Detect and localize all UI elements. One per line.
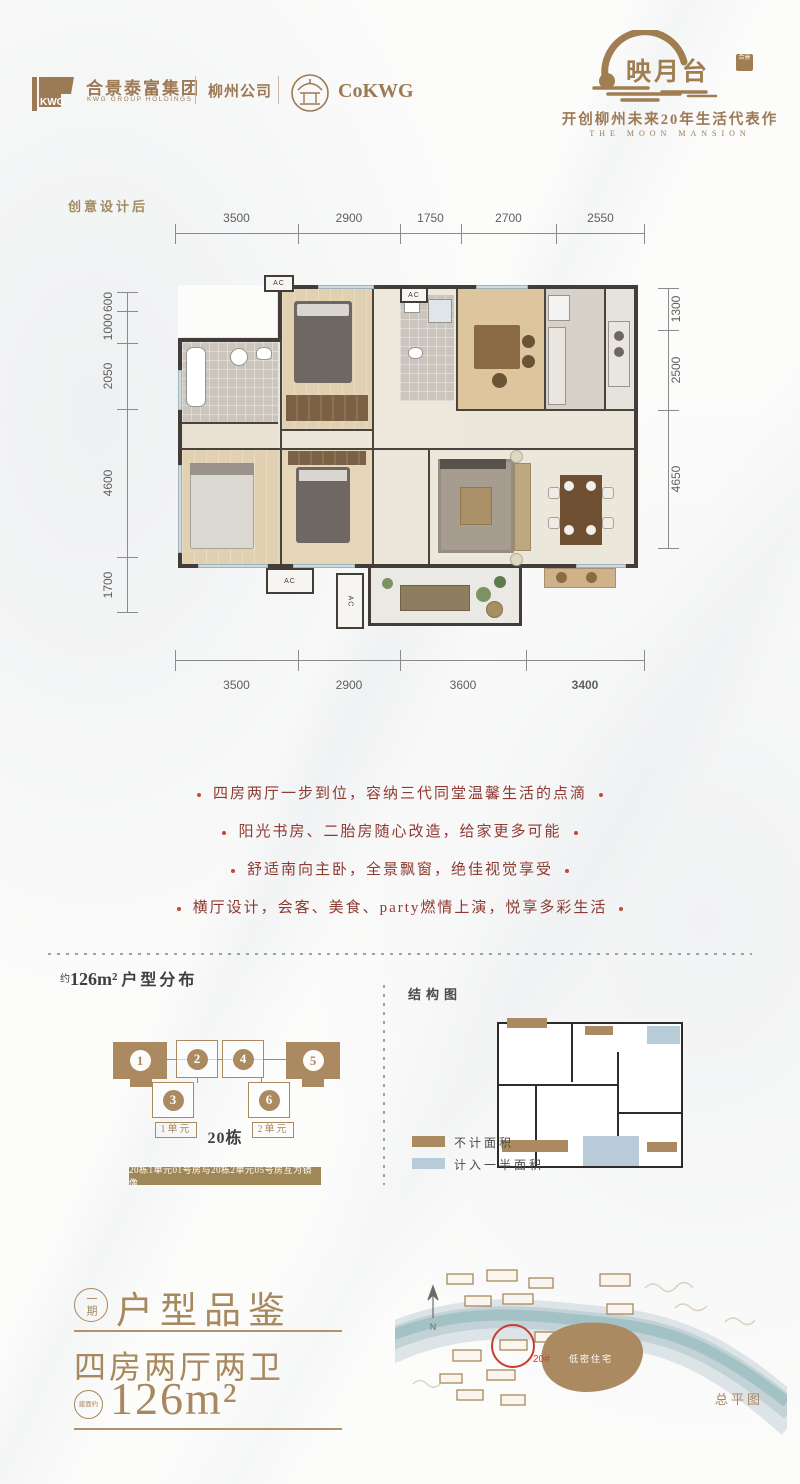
toilet — [256, 347, 272, 360]
unit-block-1-tab — [130, 1079, 152, 1087]
dim-bottom-4: 3400 — [526, 678, 644, 692]
dining-chair — [548, 517, 560, 529]
half-area-patch — [583, 1136, 639, 1166]
tv-cabinet — [440, 459, 506, 469]
desk-chair — [492, 373, 507, 388]
bathtub — [186, 347, 206, 407]
plate — [586, 525, 596, 535]
stool — [586, 572, 597, 583]
dim-left-4: 4600 — [101, 463, 115, 503]
column-divider — [383, 985, 385, 1185]
brochure-page: KWG 合景泰富集团 KWG GROUP HOLDINGS 柳州公司 CoKWG… — [0, 0, 800, 1484]
unit-block-6: 6 — [248, 1082, 290, 1118]
dining-chair — [602, 487, 614, 499]
unit-block-5: 5 — [286, 1042, 340, 1079]
distribution-title: 约126m²户型分布 — [60, 966, 197, 990]
ac-unit: AC — [266, 568, 314, 594]
floor-lamp — [510, 450, 523, 463]
zone-label: 低密住宅 — [569, 1353, 613, 1364]
master-headboard — [190, 463, 254, 475]
stove-burner — [614, 331, 624, 341]
bullet-dot-icon — [197, 793, 201, 797]
dim-line-left — [127, 292, 128, 613]
kitchen-counter — [548, 327, 566, 405]
plate — [564, 481, 574, 491]
hallway — [182, 424, 278, 450]
bathroom-sink — [230, 348, 248, 366]
bullet-dot-icon — [619, 907, 623, 911]
feature-line: 横厅设计，会客、美食、party燃情上演，悦享多彩生活 — [0, 896, 800, 917]
side-chair — [522, 335, 535, 348]
study-desk — [474, 325, 520, 369]
legend-excluded-label: 不计面积 — [454, 1134, 514, 1151]
mirror-note-banner: 20栋1单元01号房与20栋2单元05号房互为镜像 — [129, 1167, 321, 1185]
ac-unit: AC — [264, 275, 294, 292]
bed-pillows — [297, 304, 349, 316]
balcony-bench — [400, 585, 470, 611]
stool — [556, 572, 567, 583]
dim-top-5: 2550 — [556, 211, 645, 225]
bed-pillows — [299, 470, 347, 481]
structure-diagram — [497, 1022, 683, 1168]
unit-block-4: 4 — [222, 1040, 264, 1078]
dim-right-1: 1300 — [669, 289, 683, 329]
fridge — [548, 295, 570, 321]
header-divider — [195, 76, 196, 104]
dim-top-2: 2900 — [298, 211, 400, 225]
dim-left-3: 2050 — [101, 356, 115, 396]
phase-badge: 一期 — [74, 1288, 108, 1322]
dim-bottom-1: 3500 — [175, 678, 298, 692]
ac-unit: AC — [400, 287, 428, 303]
kwg-logo-icon: KWG — [30, 74, 76, 114]
dim-line-bottom — [175, 660, 645, 661]
excluded-area-patch — [647, 1142, 677, 1152]
summary-rule — [74, 1330, 342, 1332]
dim-bottom-3: 3600 — [400, 678, 526, 692]
feature-line: 阳光书房、二胎房随心改造，给家更多可能 — [0, 820, 800, 841]
floor-lamp — [510, 553, 523, 566]
dim-right-3: 4650 — [669, 459, 683, 499]
bullet-dot-icon — [231, 869, 235, 873]
company-name: 柳州公司 — [208, 80, 272, 101]
plant — [476, 587, 491, 602]
section-divider — [48, 953, 752, 955]
ac-unit: AC — [336, 573, 364, 629]
half-area-patch — [647, 1026, 680, 1044]
master-bed — [190, 463, 254, 549]
legend-half-swatch — [412, 1158, 445, 1169]
brand-seal: 合景 — [736, 54, 753, 71]
dining-bay — [544, 568, 616, 588]
plan-notch — [178, 285, 277, 337]
dim-top-3: 1750 — [400, 211, 461, 225]
dining-chair — [548, 487, 560, 499]
dim-left-2: 1000 — [101, 307, 115, 347]
site-plan: 低密住宅 20# N 总平图 — [395, 1262, 787, 1472]
dim-right-2: 2500 — [669, 350, 683, 390]
dining-chair — [602, 517, 614, 529]
wardrobe — [286, 395, 368, 421]
dim-line-top — [175, 233, 645, 234]
legend-excluded-swatch — [412, 1136, 445, 1147]
unit-block-1: 1 — [113, 1042, 167, 1079]
unit-block-2: 2 — [176, 1040, 218, 1078]
summary-area: 126m² — [110, 1372, 239, 1425]
wardrobe — [288, 451, 366, 465]
plant — [494, 576, 506, 588]
excluded-area-patch — [507, 1018, 547, 1028]
feature-line: 四房两厅一步到位，容纳三代同堂温馨生活的点滴 — [0, 782, 800, 803]
structure-title: 结构图 — [408, 984, 462, 1003]
bullet-dot-icon — [599, 793, 603, 797]
unit1-label: 1单元 — [155, 1122, 197, 1138]
shower — [428, 299, 452, 323]
stove-burner — [614, 347, 624, 357]
bullet-dot-icon — [222, 831, 226, 835]
building-label: 20栋 — [200, 1124, 250, 1148]
unit-block-3: 3 — [152, 1082, 194, 1118]
summary-title: 户型品鉴 — [116, 1280, 292, 1334]
floor-plan: AC AC AC AC — [178, 285, 638, 630]
unit2-label: 2单元 — [252, 1122, 294, 1138]
dim-top-4: 2700 — [461, 211, 556, 225]
building-tag: 20# — [533, 1354, 550, 1365]
cokwg-wordmark: CoKWG — [338, 80, 414, 103]
cokwg-pavilion-icon — [288, 71, 332, 115]
brand-block: 映月台 合景 开创柳州未来20年生活代表作 THE MOON MANSION — [560, 30, 780, 145]
side-chair — [522, 355, 535, 368]
plate — [586, 481, 596, 491]
plate — [564, 525, 574, 535]
north-label: N — [430, 1322, 437, 1332]
distribution-title-suffix: 户型分布 — [121, 972, 197, 989]
siteplan-caption: 总平图 — [715, 1392, 763, 1407]
bullet-dot-icon — [177, 907, 181, 911]
summary-rule — [74, 1428, 342, 1430]
dim-bottom-2: 2900 — [298, 678, 400, 692]
distribution-title-prefix: 约 — [60, 974, 70, 985]
header-logos: KWG 合景泰富集团 KWG GROUP HOLDINGS 柳州公司 CoKWG — [30, 72, 430, 122]
feature-line: 舒适南向主卧，全景飘窗，绝佳视觉享受 — [0, 858, 800, 879]
legend-half-label: 计入一半面积 — [454, 1156, 544, 1173]
plant — [382, 578, 393, 589]
kwg-logo-text: KWG — [40, 97, 65, 108]
plan-corner-label: 创意设计后 — [68, 196, 148, 215]
dim-top-1: 3500 — [175, 211, 298, 225]
brand-tagline-en: THE MOON MANSION — [525, 129, 800, 138]
dim-left-5: 1700 — [101, 565, 115, 605]
bullet-dot-icon — [574, 831, 578, 835]
sofa — [514, 463, 531, 551]
balcony-table — [486, 601, 503, 618]
area-badge: 建面约 — [74, 1390, 103, 1419]
guest-toilet — [408, 347, 423, 359]
group-name-en: KWG GROUP HOLDINGS — [87, 96, 193, 103]
header-divider — [278, 76, 279, 104]
bullet-dot-icon — [565, 869, 569, 873]
coffee-table — [460, 487, 492, 525]
brand-name: 映月台 — [626, 52, 710, 88]
brand-tagline: 开创柳州未来20年生活代表作 — [525, 108, 800, 129]
distribution-title-area: 126m² — [70, 969, 117, 989]
unit-block-5-tab — [302, 1079, 324, 1087]
excluded-area-patch — [585, 1026, 613, 1035]
